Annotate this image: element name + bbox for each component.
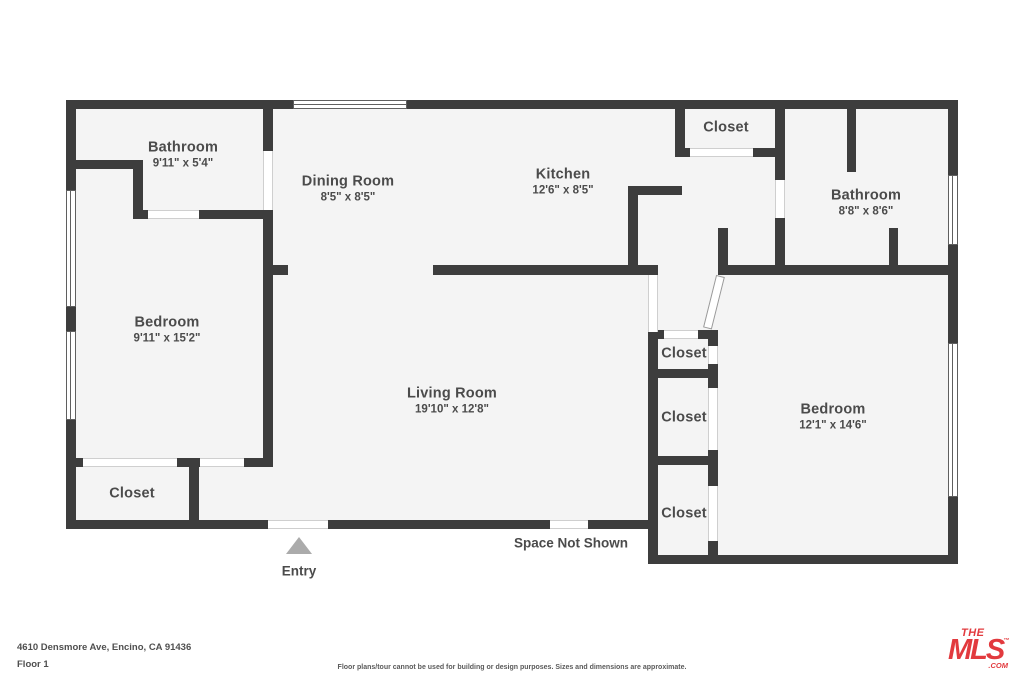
window: [948, 343, 958, 497]
room-name: Closet: [703, 120, 749, 137]
door-opening: [200, 458, 244, 467]
room-label-closet-top: Closet: [703, 120, 749, 137]
room-name: Bathroom: [148, 140, 218, 157]
room-dims: 12'1" x 14'6": [799, 419, 867, 433]
door-opening: [690, 148, 753, 157]
window: [948, 175, 958, 245]
window: [66, 190, 76, 307]
room-name: Closet: [661, 410, 707, 427]
disclaimer-text: Floor plans/tour cannot be used for buil…: [338, 664, 687, 671]
room-label-closet-bottom-left: Closet: [109, 486, 155, 503]
room-label-living: Living Room 19'10" x 12'8": [407, 386, 497, 417]
wall: [628, 186, 682, 195]
themls-logo: THE MLS™ .COM: [948, 628, 1008, 670]
wall: [66, 458, 83, 467]
wall: [708, 450, 718, 486]
room-name: Closet: [661, 506, 707, 523]
room-dims: 8'8" x 8'6": [831, 205, 901, 219]
room-label-bathroom-right: Bathroom 8'8" x 8'6": [831, 188, 901, 219]
room-name: Closet: [109, 486, 155, 503]
door-opening: [263, 151, 273, 210]
wall: [648, 456, 717, 465]
wall: [708, 541, 718, 555]
room-name: Bedroom: [799, 402, 867, 419]
room-name: Bedroom: [134, 315, 201, 332]
wall: [708, 330, 718, 346]
wall: [718, 228, 728, 275]
room-name: Living Room: [407, 386, 497, 403]
address-text: 4610 Densmore Ave, Encino, CA 91436: [17, 642, 191, 653]
wall: [244, 458, 273, 467]
door-opening: [664, 330, 698, 339]
floor-plan-page: Bathroom 9'11" x 5'4" Dining Room 8'5" x…: [0, 0, 1024, 683]
wall: [433, 265, 658, 275]
room-name: Kitchen: [532, 167, 593, 184]
room-label-closet-hall-3: Closet: [661, 506, 707, 523]
door-opening: [550, 520, 588, 529]
door-opening: [648, 275, 658, 332]
room-dims: 12'6" x 8'5": [532, 184, 593, 198]
wall: [718, 265, 958, 275]
door-opening: [83, 458, 177, 467]
room-label-kitchen: Kitchen 12'6" x 8'5": [532, 167, 593, 198]
window: [66, 331, 76, 420]
room-label-closet-hall-2: Closet: [661, 410, 707, 427]
room-label-bathroom-upper: Bathroom 9'11" x 5'4": [148, 140, 218, 171]
room-dims: 19'10" x 12'8": [407, 403, 497, 417]
room-name: Dining Room: [302, 174, 394, 191]
door-opening: [775, 180, 785, 218]
room-label-closet-hall-1: Closet: [661, 346, 707, 363]
room-label-bedroom-right: Bedroom 12'1" x 14'6": [799, 402, 867, 433]
wall: [648, 369, 717, 378]
room-dims: 9'11" x 5'4": [148, 157, 218, 171]
wall: [66, 100, 958, 109]
room-name: Bathroom: [831, 188, 901, 205]
room-name: Closet: [661, 346, 707, 363]
entry-label: Entry: [282, 564, 317, 579]
door-opening: [708, 346, 718, 364]
door-opening: [708, 388, 718, 450]
wall: [648, 555, 958, 564]
entry-arrow-icon: [286, 537, 312, 554]
wall: [847, 100, 856, 172]
room-dims: 8'5" x 8'5": [302, 191, 394, 205]
door-opening: [148, 210, 199, 219]
wall: [189, 458, 199, 529]
wall: [628, 186, 638, 275]
entry-door-opening: [268, 520, 328, 529]
door-opening: [708, 486, 718, 541]
room-label-dining: Dining Room 8'5" x 8'5": [302, 174, 394, 205]
wall: [66, 160, 138, 169]
floor-number-text: Floor 1: [17, 659, 49, 670]
space-not-shown-label: Space Not Shown: [514, 536, 628, 551]
room-dims: 9'11" x 15'2": [134, 332, 201, 346]
room-label-bedroom-left: Bedroom 9'11" x 15'2": [134, 315, 201, 346]
wall: [708, 364, 718, 388]
wall: [273, 265, 288, 275]
logo-trademark: ™: [1003, 638, 1009, 644]
window: [293, 100, 407, 109]
